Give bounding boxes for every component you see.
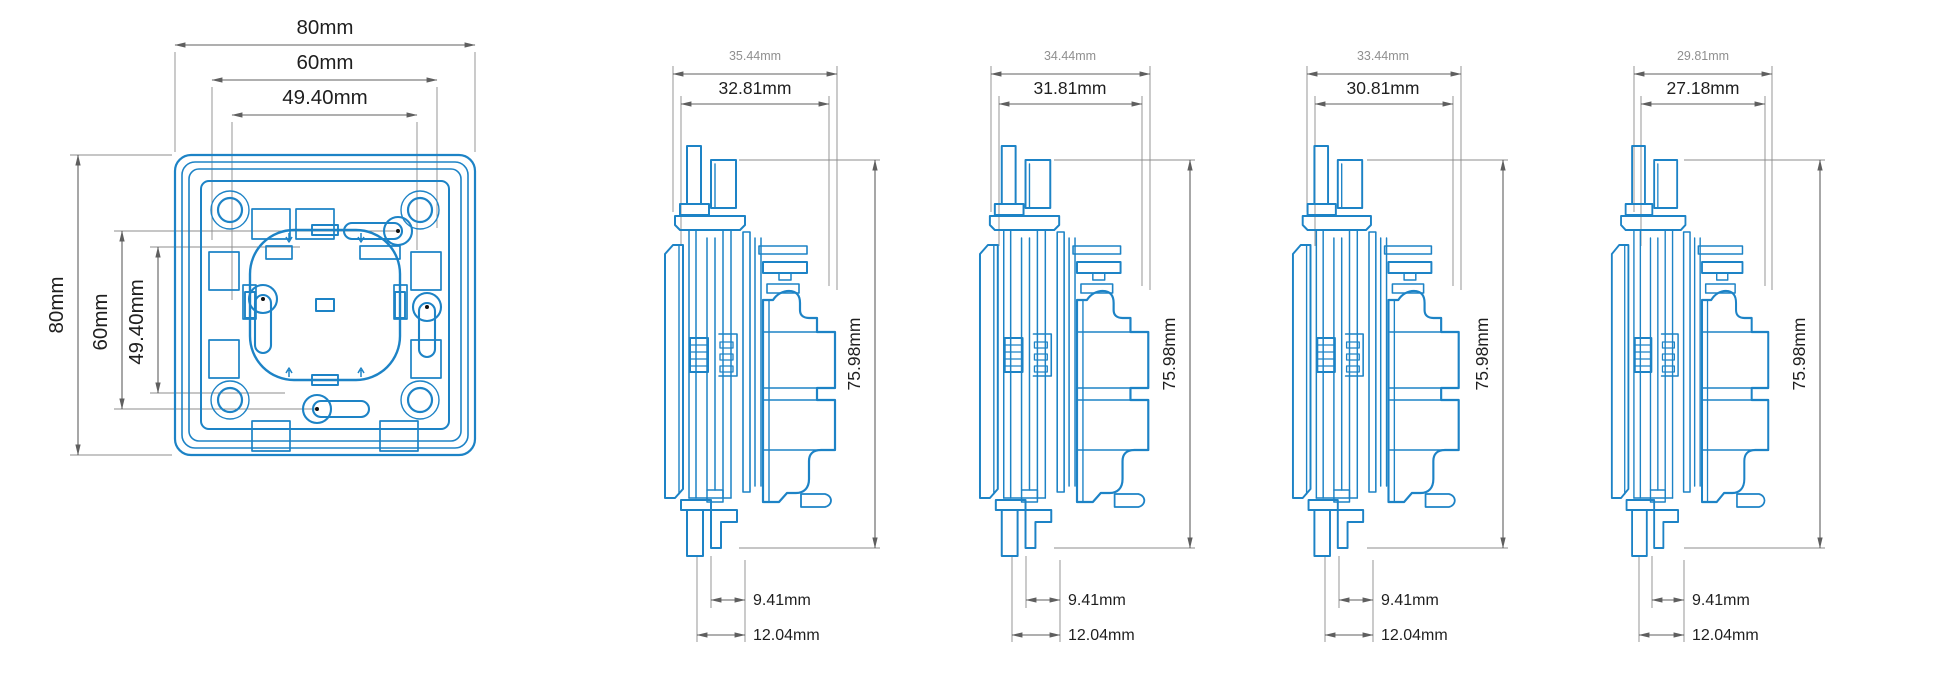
sv3-height-label: 75.98mm: [1472, 318, 1492, 391]
front-view-svg: 80mm 60mm 49.40mm 80mm 60mm 49.40mm: [0, 0, 530, 680]
front-left-dim-4940-label: 49.40mm: [125, 279, 148, 364]
sv4-outer-width-label: 29.81mm: [1677, 49, 1729, 63]
side-view-2-svg: 34.44mm 31.81mm 75.98mm 9.41mm 12.04mm: [954, 0, 1214, 680]
side-view-4-svg: 29.81mm 27.18mm 75.98mm 9.41mm 12.04mm: [1584, 0, 1844, 680]
front-dimension-lines: [78, 45, 475, 455]
sv4-inner-width-label: 27.18mm: [1667, 78, 1740, 98]
front-top-dim-60-label: 60mm: [297, 51, 354, 74]
center-squircle: [250, 230, 400, 380]
sv3-inner-width-label: 30.81mm: [1347, 78, 1420, 98]
sv3-clip-depth-label: 9.41mm: [1381, 592, 1439, 609]
front-left-dim-80-label: 80mm: [45, 277, 68, 334]
front-view: 80mm 60mm 49.40mm 80mm 60mm 49.40mm: [0, 0, 530, 680]
front-top-dim-80-label: 80mm: [297, 16, 354, 39]
side-view-3-svg: 33.44mm 30.81mm 75.98mm 9.41mm 12.04mm: [1267, 0, 1527, 680]
front-extension-lines: [70, 52, 475, 455]
side-view-1: 35.44mm 32.81mm 75.98mm 9.41mm 12.04mm: [639, 0, 899, 680]
sv2-clip-depth-label: 9.41mm: [1068, 592, 1126, 609]
keyhole-center-dots: [261, 229, 429, 411]
sv4-profile-drawing: [1612, 146, 1768, 556]
front-frame-drawing: [175, 155, 475, 455]
front-left-dim-60-label: 60mm: [89, 294, 112, 351]
sv3-profile-drawing: [1293, 146, 1459, 556]
sv2-height-label: 75.98mm: [1159, 318, 1179, 391]
side-view-4: 29.81mm 27.18mm 75.98mm 9.41mm 12.04mm: [1584, 0, 1844, 680]
sv4-height-label: 75.98mm: [1789, 318, 1809, 391]
direction-arrow-icons: [286, 233, 364, 377]
side-view-3: 33.44mm 30.81mm 75.98mm 9.41mm 12.04mm: [1267, 0, 1527, 680]
sv2-profile-drawing: [980, 146, 1148, 556]
sv1-total-depth-label: 12.04mm: [753, 627, 820, 644]
center-window: [316, 299, 334, 311]
sv3-outer-width-label: 33.44mm: [1357, 49, 1409, 63]
sv4-total-depth-label: 12.04mm: [1692, 627, 1759, 644]
sv2-outer-width-label: 34.44mm: [1044, 49, 1096, 63]
perimeter-pockets: [209, 209, 441, 451]
technical-drawing-canvas: 80mm 60mm 49.40mm 80mm 60mm 49.40mm: [0, 0, 1946, 680]
sv1-outer-width-label: 35.44mm: [729, 49, 781, 63]
sv2-total-depth-label: 12.04mm: [1068, 627, 1135, 644]
sv3-total-depth-label: 12.04mm: [1381, 627, 1448, 644]
sv1-inner-width-label: 32.81mm: [719, 78, 792, 98]
sv1-clip-depth-label: 9.41mm: [753, 592, 811, 609]
sv1-height-label: 75.98mm: [844, 318, 864, 391]
sv2-inner-width-label: 31.81mm: [1034, 78, 1107, 98]
sv1-profile-drawing: [665, 146, 835, 556]
side-view-2: 34.44mm 31.81mm 75.98mm 9.41mm 12.04mm: [954, 0, 1214, 680]
front-top-dim-4940-label: 49.40mm: [282, 86, 367, 109]
sv4-clip-depth-label: 9.41mm: [1692, 592, 1750, 609]
squircle-tabs: [245, 225, 405, 385]
side-view-1-svg: 35.44mm 32.81mm 75.98mm 9.41mm 12.04mm: [639, 0, 899, 680]
